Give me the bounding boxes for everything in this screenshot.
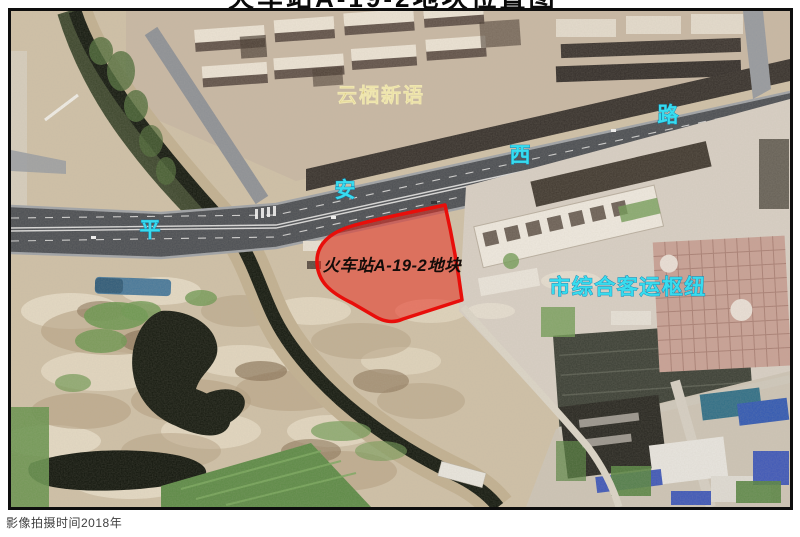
image-date-caption: 影像拍摄时间2018年: [6, 514, 122, 531]
clipped-title: 火车站A-19-2地块位置图: [228, 0, 648, 8]
parcel-label: 火车站A-19-2地块: [323, 256, 462, 275]
location-map-figure: 火车站A-19-2地块位置图: [0, 0, 800, 537]
road-char-xi: 西: [510, 144, 531, 167]
transit-hub-label: 市综合客运枢纽: [549, 275, 707, 299]
residential-label: 云栖新语: [337, 83, 425, 107]
satellite-map-canvas: 火车站A-19-2地块 云栖新语 平 安 西 路 市综合客运枢纽: [11, 11, 790, 507]
map-frame: 火车站A-19-2地块 云栖新语 平 安 西 路 市综合客运枢纽: [8, 8, 793, 510]
road-char-lu: 路: [658, 103, 680, 127]
clipped-title-text: 火车站A-19-2地块位置图: [228, 0, 648, 8]
road-char-an: 安: [335, 178, 356, 202]
road-char-ping: 平: [140, 219, 161, 242]
